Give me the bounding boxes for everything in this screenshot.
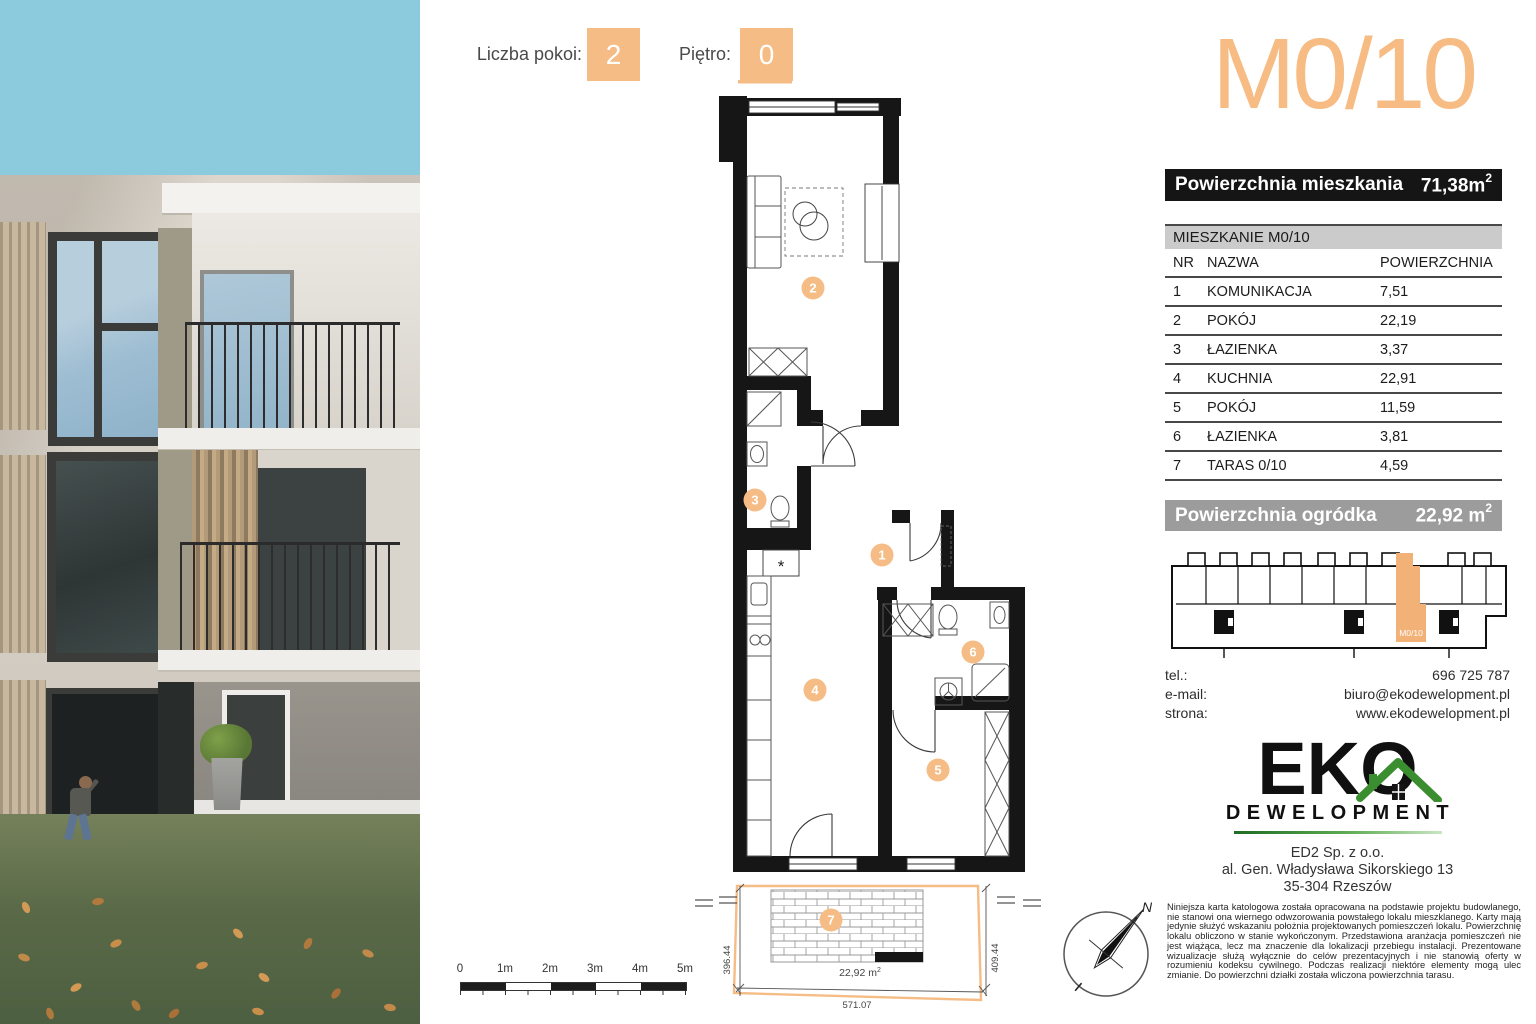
building-photo [0, 0, 420, 1024]
col-nr: NR [1165, 255, 1207, 271]
room-1-badge: 1 [878, 548, 885, 563]
child-figure [55, 776, 107, 846]
garden-area-bar: Powierzchnia ogródka 22,92 m2 [1165, 500, 1502, 531]
table-title: MIESZKANIE M0/10 [1165, 224, 1502, 249]
contact-phone-row: tel.: 696 725 787 [1165, 666, 1510, 685]
unit-code: M0/10 [1140, 22, 1475, 127]
north-label: N [1142, 899, 1153, 915]
site-plan-unit-label: M0/10 [1399, 628, 1423, 638]
email-label: e-mail: [1165, 685, 1207, 704]
scale-3m: 3m [587, 963, 603, 975]
room-2-badge: 2 [809, 281, 816, 296]
phone-value: 696 725 787 [1432, 666, 1510, 685]
wood-slat-panel [0, 455, 46, 653]
floor-label: Piętro: [600, 44, 731, 65]
logo-underline [1234, 831, 1442, 834]
company-address: ED2 Sp. z o.o. al. Gen. Władysława Sikor… [1165, 845, 1510, 896]
logo-wordmark: EKO [1257, 732, 1417, 806]
table-header-row: NR NAZWA POWIERZCHNIA [1165, 249, 1502, 276]
phone-label: tel.: [1165, 666, 1188, 685]
scale-5m: 5m [677, 963, 693, 975]
boiler-symbol: * [778, 557, 785, 576]
address-line-3: 35-304 Rzeszów [1165, 879, 1510, 896]
apartment-area-label: Powierzchnia mieszkania [1175, 174, 1403, 196]
scale-2m: 2m [542, 963, 558, 975]
scale-0: 0 [457, 963, 463, 975]
garden-area-value: 22,92 m2 [1416, 503, 1492, 527]
scale-1m: 1m [497, 963, 513, 975]
contact-web-row: strona: www.ekodewelopment.pl [1165, 704, 1510, 723]
company-logo: EKO DEWELOPMENT [1165, 732, 1510, 834]
table-row: 2 POKÓJ 22,19 [1165, 305, 1502, 334]
room-5-badge: 5 [934, 763, 941, 778]
dark-panel [158, 682, 194, 815]
garden-area-label: Powierzchnia ogródka [1175, 505, 1377, 527]
room-7-badge: 7 [827, 913, 834, 928]
legal-disclaimer: Niniejsza karta katologowa została oprac… [1167, 903, 1521, 981]
room-3-badge: 3 [751, 493, 758, 508]
floor-plan: * 396.44 409.44 571.07 22,92 m2 1 2 3 4 … [685, 80, 1065, 1020]
dimension-bottom: 571.07 [842, 1000, 871, 1011]
table-body: 1 KOMUNIKACJA 7,51 2 POKÓJ 22,19 3 ŁAZIE… [1165, 276, 1502, 481]
apartment-area-bar: Powierzchnia mieszkania 71,38m2 [1165, 169, 1502, 201]
address-line-2: al. Gen. Władysława Sikorskiego 13 [1165, 862, 1510, 879]
scale-bar: 0 1m 2m 3m 4m 5m [452, 963, 702, 1005]
rooms-table: NR NAZWA POWIERZCHNIA 1 KOMUNIKACJA 7,51… [1165, 249, 1502, 481]
balcony-railing-middle [180, 542, 400, 657]
dimension-left: 396.44 [722, 945, 733, 974]
col-name: NAZWA [1207, 255, 1380, 271]
floor-slab [158, 428, 420, 451]
terrace [771, 890, 923, 962]
house-roof-icon [1356, 752, 1442, 802]
room-4-badge: 4 [811, 683, 819, 698]
table-row: 4 KUCHNIA 22,91 [1165, 363, 1502, 392]
floor-value: 0 [740, 28, 793, 81]
address-line-1: ED2 Sp. z o.o. [1165, 845, 1510, 862]
plan-windows [749, 101, 955, 870]
table-row: 5 POKÓJ 11,59 [1165, 392, 1502, 421]
web-label: strona: [1165, 704, 1208, 723]
balcony-railing-top [185, 322, 400, 432]
col-area: POWIERZCHNIA [1380, 255, 1502, 271]
table-row: 6 ŁAZIENKA 3,81 [1165, 421, 1502, 450]
scale-4m: 4m [632, 963, 648, 975]
compass-rose: N [1050, 890, 1165, 1005]
apartment-area-value: 71,38m2 [1421, 173, 1492, 197]
plant-pot [210, 758, 244, 810]
room-6-badge: 6 [969, 645, 976, 660]
email-value: biuro@ekodewelopment.pl [1344, 685, 1510, 704]
plan-doors [790, 422, 951, 856]
roof-fascia [162, 183, 420, 215]
floor-slab [158, 650, 420, 672]
site-plan: M0/10 [1168, 546, 1510, 664]
wood-slat-panel [0, 222, 46, 430]
terrace-area-label: 22,92 m2 [839, 967, 881, 979]
wood-slat-panel [0, 680, 46, 815]
web-value: www.ekodewelopment.pl [1356, 704, 1510, 723]
contact-email-row: e-mail: biuro@ekodewelopment.pl [1165, 685, 1510, 704]
contact-block: tel.: 696 725 787 e-mail: biuro@ekodewel… [1165, 666, 1510, 723]
table-row: 3 ŁAZIENKA 3,37 [1165, 334, 1502, 363]
table-row: 7 TARAS 0/10 4,59 [1165, 450, 1502, 479]
rooms-count-label: Liczba pokoi: [440, 44, 582, 65]
dimension-right: 409.44 [990, 943, 1001, 972]
table-row: 1 KOMUNIKACJA 7,51 [1165, 276, 1502, 305]
window-top-floor [48, 232, 176, 446]
